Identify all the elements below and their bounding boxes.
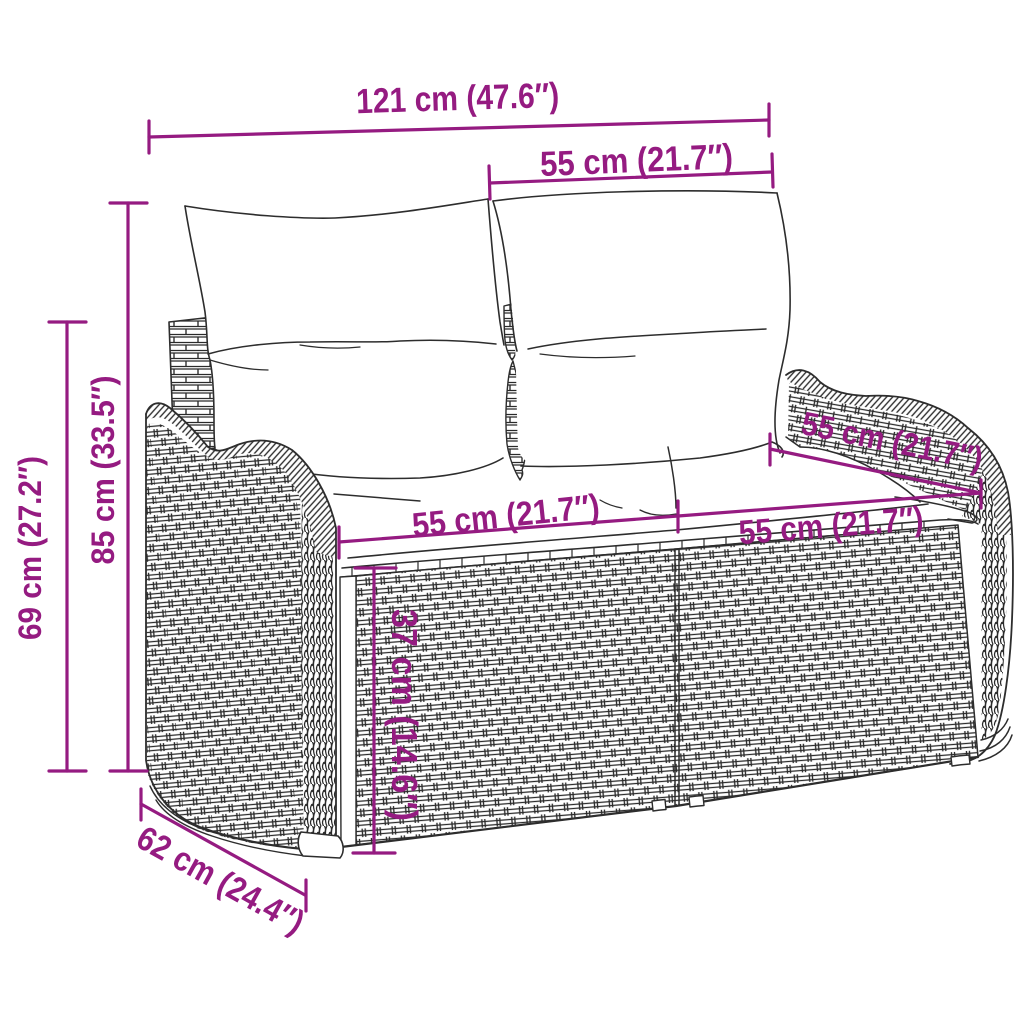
svg-text:55 cm (21.7″): 55 cm (21.7″) [539, 137, 733, 184]
svg-text:121 cm (47.6″): 121 cm (47.6″) [356, 76, 560, 121]
svg-text:69 cm (27.2″): 69 cm (27.2″) [12, 456, 48, 640]
svg-text:85 cm (33.5″): 85 cm (33.5″) [85, 376, 121, 565]
svg-text:37 cm (14.6″): 37 cm (14.6″) [384, 609, 425, 821]
